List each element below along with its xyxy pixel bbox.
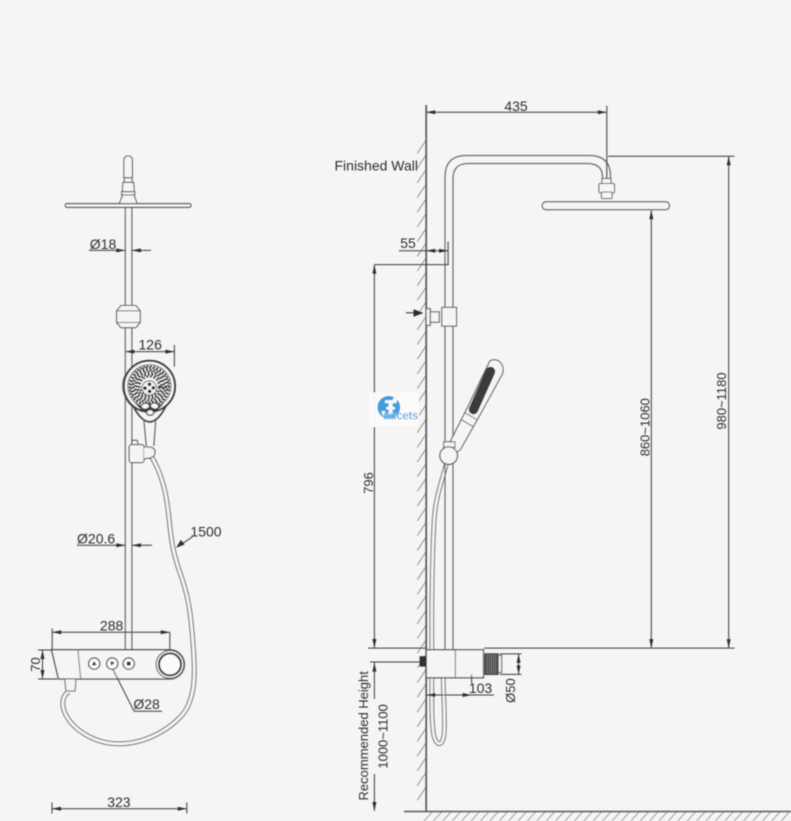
svg-text:1000~1100: 1000~1100 bbox=[376, 704, 391, 768]
svg-text:55: 55 bbox=[400, 235, 416, 251]
svg-text:435: 435 bbox=[504, 98, 528, 114]
svg-text:Recommended Height: Recommended Height bbox=[356, 671, 371, 801]
svg-text:70: 70 bbox=[28, 657, 43, 671]
svg-text:103: 103 bbox=[469, 680, 493, 696]
svg-text:288: 288 bbox=[100, 618, 124, 634]
svg-text:Ø18: Ø18 bbox=[90, 236, 117, 252]
svg-text:1500: 1500 bbox=[190, 523, 221, 539]
svg-text:Ø20.6: Ø20.6 bbox=[77, 531, 115, 547]
svg-text:126: 126 bbox=[139, 337, 163, 353]
svg-text:aucets: aucets bbox=[384, 411, 419, 423]
svg-text:Ø50: Ø50 bbox=[503, 678, 518, 703]
svg-text:980~1180: 980~1180 bbox=[714, 372, 729, 429]
svg-text:Ø28: Ø28 bbox=[133, 696, 160, 712]
svg-text:796: 796 bbox=[361, 472, 376, 494]
svg-text:323: 323 bbox=[107, 794, 131, 810]
svg-text:Finished Wall: Finished Wall bbox=[335, 158, 419, 174]
svg-text:860~1060: 860~1060 bbox=[637, 398, 652, 456]
